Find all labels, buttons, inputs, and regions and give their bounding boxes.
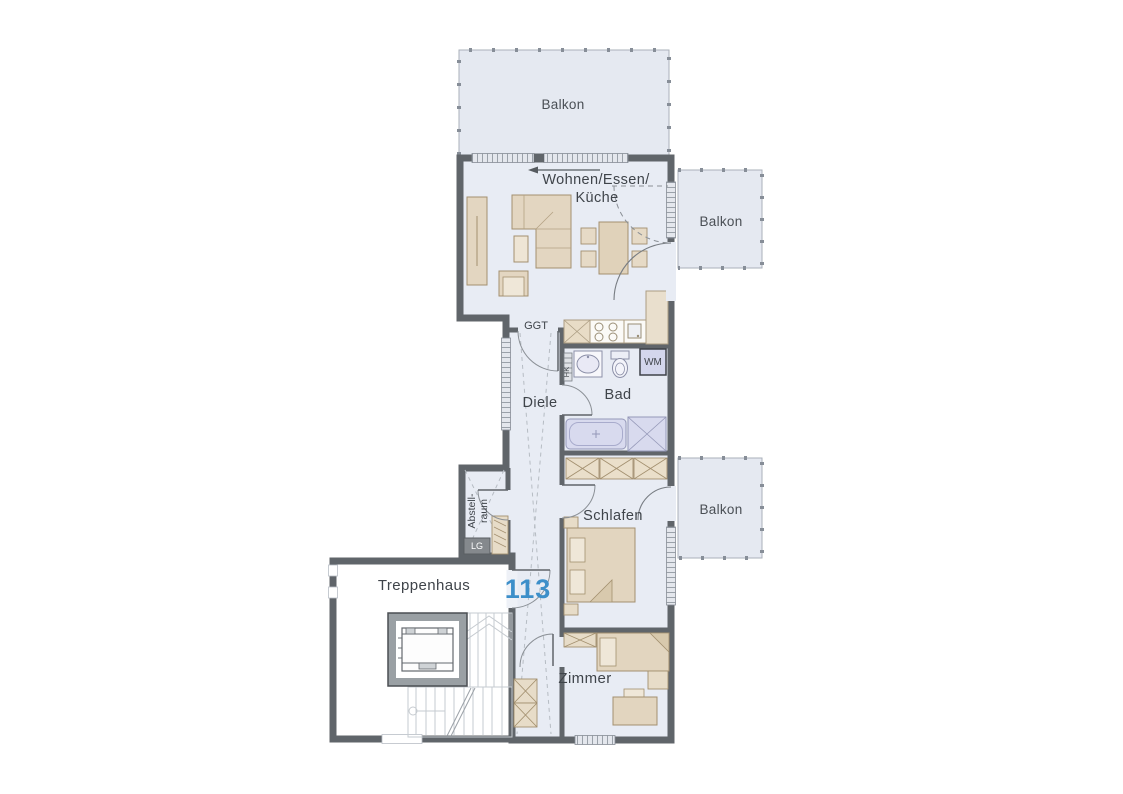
appliance-icon <box>564 320 590 343</box>
label-abstellraum-line1: Abstell- <box>466 493 478 529</box>
toilet-icon <box>611 351 629 378</box>
window-living-top-right <box>544 154 628 163</box>
window-zimmer-bottom <box>575 736 615 745</box>
window-diele-left <box>502 338 511 430</box>
stairwell-wall-opening <box>329 565 338 576</box>
window-schlafen-right <box>667 527 676 605</box>
label-diele: Diele <box>522 395 557 411</box>
label-hk: HK <box>562 367 571 377</box>
bedroom-furniture <box>564 517 635 615</box>
label-schlafen: Schlafen <box>583 508 643 524</box>
washbasin-icon <box>574 351 602 377</box>
single-bed <box>597 633 669 671</box>
stove-icon <box>590 320 624 343</box>
nightstand <box>564 517 578 528</box>
label-balkon-mid: Balkon <box>699 214 742 229</box>
window-living-right <box>667 182 676 238</box>
floorplan-svg: Balkon Wohnen/Essen/ Küche Balkon GGT Di… <box>0 0 1123 794</box>
stairwell-bottom-opening <box>382 735 422 744</box>
elevator <box>388 613 467 686</box>
sink-icon <box>624 320 646 343</box>
label-unit-number: 113 <box>505 574 552 604</box>
label-zimmer: Zimmer <box>558 670 611 687</box>
label-balkon-low: Balkon <box>699 502 742 517</box>
stairwell-wall-opening <box>329 587 338 598</box>
label-abstellraum-line2: raum <box>478 499 490 523</box>
window-post <box>534 154 544 163</box>
label-wohnen-line1: Wohnen/Essen/ <box>542 172 650 188</box>
wardrobe-row <box>566 458 667 479</box>
label-treppenhaus: Treppenhaus <box>378 577 470 594</box>
label-balkon-top: Balkon <box>541 97 584 112</box>
dining-table <box>599 222 628 274</box>
nightstand <box>564 604 578 615</box>
dresser <box>648 671 668 689</box>
double-bed <box>567 528 635 602</box>
label-ggt: GGT <box>524 320 548 332</box>
sideboard <box>467 197 487 285</box>
shelf <box>564 633 596 647</box>
floorplan-canvas: Balkon Wohnen/Essen/ Küche Balkon GGT Di… <box>0 0 1123 794</box>
label-wm: WM <box>644 357 662 368</box>
shower-icon <box>628 417 666 451</box>
window-living-top-left <box>472 154 534 163</box>
bathtub-icon <box>566 419 626 449</box>
label-bad: Bad <box>605 387 632 403</box>
armchair <box>499 271 528 296</box>
coffee-table <box>514 236 528 262</box>
coat-rack <box>492 516 508 554</box>
label-lg: LG <box>471 541 483 551</box>
hall-wardrobe <box>514 679 537 727</box>
label-wohnen-line2: Küche <box>575 190 618 206</box>
